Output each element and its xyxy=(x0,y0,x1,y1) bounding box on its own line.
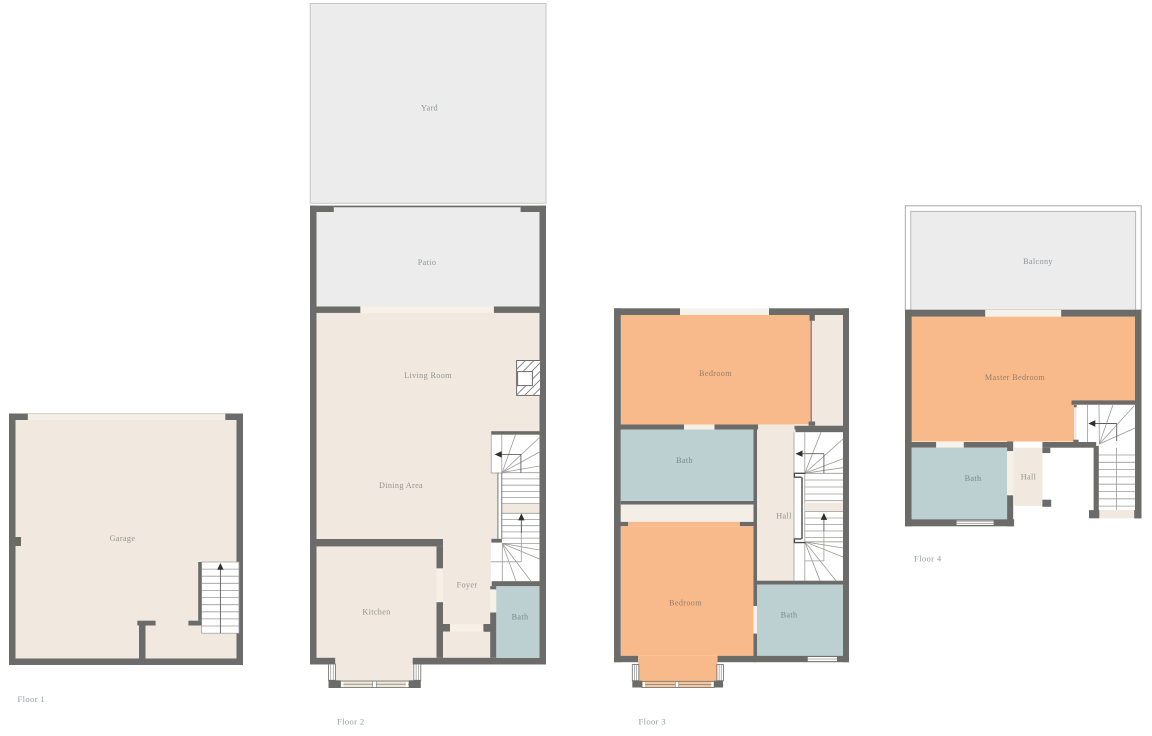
svg-text:Kitchen: Kitchen xyxy=(362,607,390,616)
svg-text:Bath: Bath xyxy=(965,474,982,483)
svg-text:Floor 2: Floor 2 xyxy=(337,716,365,726)
svg-text:Hall: Hall xyxy=(776,512,792,521)
svg-text:Patio: Patio xyxy=(418,258,437,267)
svg-text:Hall: Hall xyxy=(1021,472,1037,481)
svg-text:Bath: Bath xyxy=(512,613,529,622)
svg-text:Bath: Bath xyxy=(781,610,798,619)
svg-text:Foyer: Foyer xyxy=(457,580,478,589)
svg-text:Bath: Bath xyxy=(676,456,693,465)
svg-text:Floor 4: Floor 4 xyxy=(914,554,942,564)
svg-text:Balcony: Balcony xyxy=(1023,257,1053,266)
svg-text:Bedroom: Bedroom xyxy=(669,599,702,608)
svg-text:Floor 3: Floor 3 xyxy=(639,716,667,726)
svg-text:Garage: Garage xyxy=(110,534,136,543)
svg-text:Yard: Yard xyxy=(421,103,438,112)
svg-text:Living Room: Living Room xyxy=(404,371,452,380)
svg-text:Master Bedroom: Master Bedroom xyxy=(985,373,1045,382)
svg-text:Floor 1: Floor 1 xyxy=(18,694,46,704)
svg-text:Bedroom: Bedroom xyxy=(699,369,732,378)
svg-text:Dining Area: Dining Area xyxy=(379,481,423,490)
